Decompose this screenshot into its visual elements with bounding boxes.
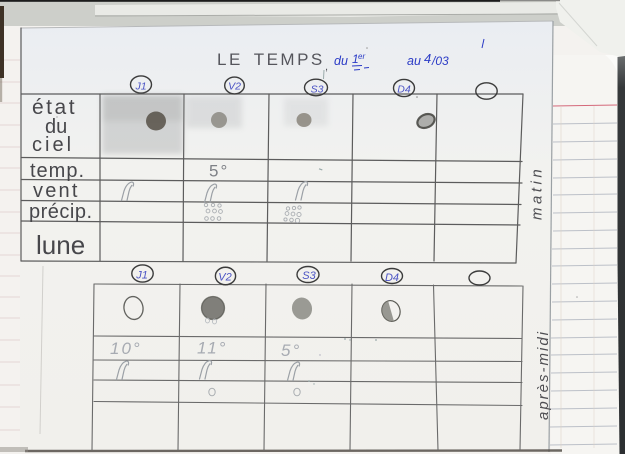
svg-text:D4: D4	[397, 84, 411, 96]
svg-text:du: du	[334, 54, 348, 68]
svg-text:matin: matin	[529, 166, 546, 220]
svg-text:lune: lune	[36, 230, 85, 260]
svg-text:temp.: temp.	[30, 160, 85, 182]
svg-text:V2: V2	[228, 81, 241, 93]
svg-text:S3: S3	[302, 270, 316, 282]
svg-text:précip.: précip.	[29, 201, 93, 223]
svg-text:5°: 5°	[281, 341, 301, 360]
svg-text:er: er	[358, 52, 365, 61]
svg-text:10°: 10°	[110, 339, 142, 358]
svg-text:V2: V2	[218, 272, 231, 284]
svg-text:11°: 11°	[197, 339, 227, 358]
svg-text:4: 4	[424, 51, 431, 66]
svg-text:ciel: ciel	[32, 134, 74, 156]
svg-text:,: ,	[325, 61, 328, 73]
svg-text:LE TEMPS: LE TEMPS	[217, 50, 325, 69]
svg-text:au: au	[407, 54, 421, 68]
svg-text:après-midi: après-midi	[535, 330, 552, 420]
svg-text:5°: 5°	[209, 162, 229, 181]
svg-text:vent: vent	[33, 180, 80, 202]
svg-text:J1: J1	[135, 270, 148, 282]
svg-text:D4: D4	[385, 272, 399, 284]
svg-text:J1: J1	[134, 81, 146, 93]
svg-text:/03: /03	[431, 54, 449, 68]
svg-text:S3: S3	[311, 84, 324, 96]
